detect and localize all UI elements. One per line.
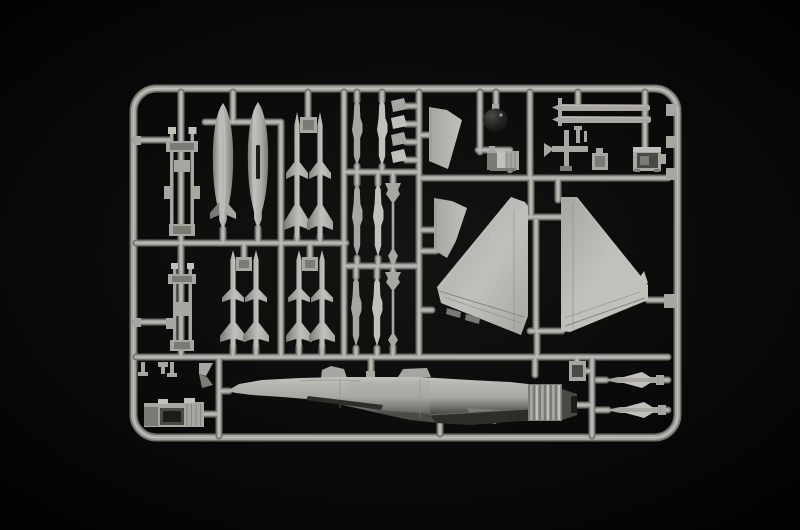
launch-rails — [351, 100, 388, 346]
pitot-rods — [552, 98, 651, 126]
cockpit-tub — [144, 398, 204, 427]
fuselage-half — [227, 366, 577, 425]
nose-radome — [483, 104, 508, 132]
exhaust-box — [569, 361, 586, 381]
small-fins — [391, 98, 407, 163]
pin-parts — [574, 126, 587, 143]
photo-stage — [0, 0, 800, 530]
missile-blocks — [236, 117, 318, 271]
intake-part — [199, 363, 213, 388]
canard-part-1 — [604, 372, 664, 388]
gear-cross-part — [544, 130, 588, 171]
canard-part-2 — [606, 402, 666, 418]
tail-fin-right — [561, 197, 648, 332]
fin-blade-upper — [429, 107, 462, 169]
sprue-photo — [0, 0, 800, 530]
fittings — [138, 362, 177, 377]
equipment-box — [633, 147, 666, 172]
drop-tank-right — [248, 102, 268, 229]
small-box — [592, 148, 608, 170]
fin-blade-lower — [434, 198, 467, 258]
